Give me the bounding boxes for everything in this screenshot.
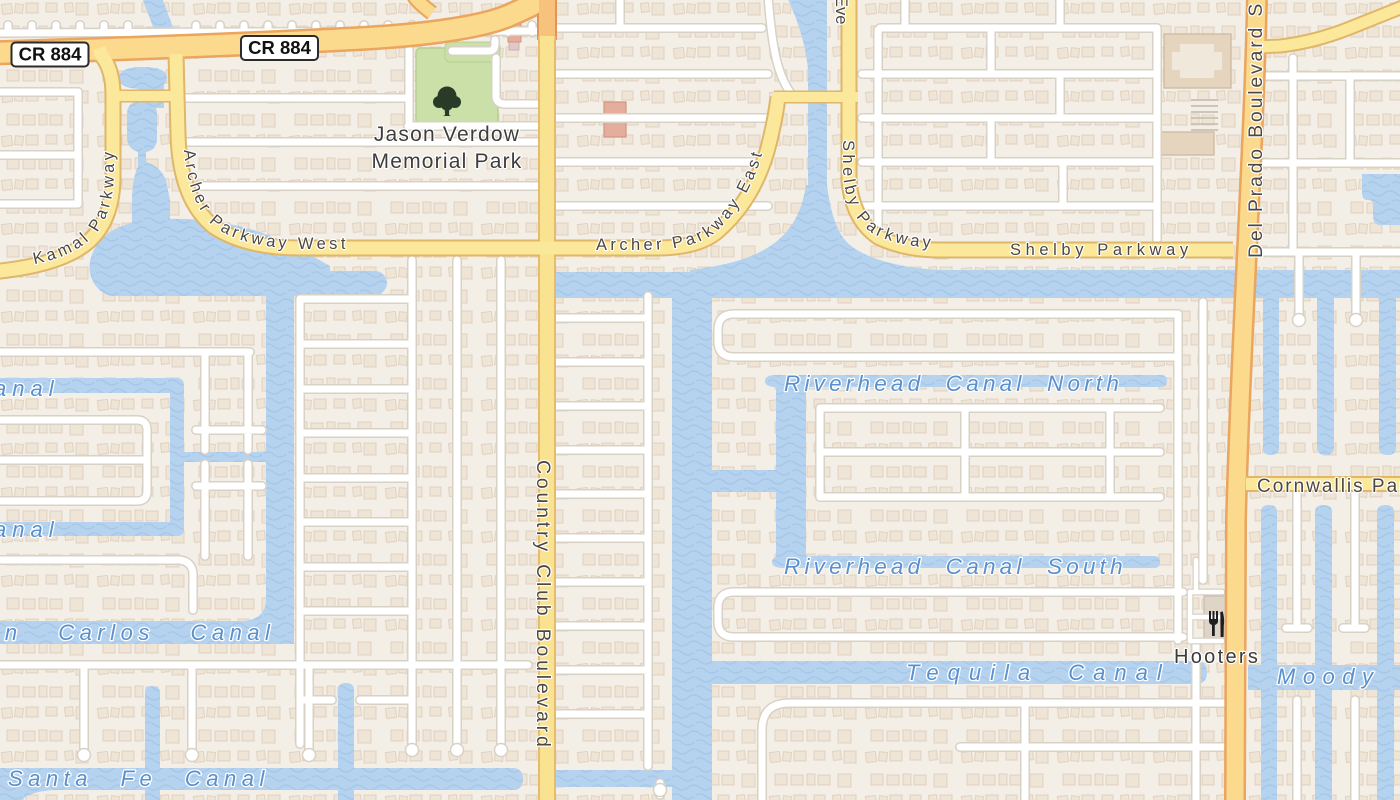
svg-text:Country Club Boulevard: Country Club Boulevard [532, 460, 554, 751]
svg-text:Hooters: Hooters [1174, 646, 1260, 668]
svg-text:CR 884: CR 884 [19, 44, 82, 65]
svg-text:Del Prado Boulevard S: Del Prado Boulevard S [1245, 1, 1267, 258]
svg-text:Tequila Canal: Tequila Canal [906, 660, 1171, 685]
svg-text:Cornwallis Parkw: Cornwallis Parkw [1257, 476, 1400, 497]
svg-text:Santa Fe Canal: Santa Fe Canal [8, 766, 270, 791]
svg-text:Moody Can: Moody Can [1277, 664, 1400, 689]
svg-text:Shelby Parkway: Shelby Parkway [1010, 241, 1193, 259]
svg-text:Riverhead Canal North: Riverhead Canal North [784, 371, 1123, 396]
svg-text:Jason Verdow: Jason Verdow [374, 123, 520, 146]
svg-text:Riverhead Canal South: Riverhead Canal South [784, 554, 1127, 579]
svg-text:CR 884: CR 884 [248, 37, 311, 58]
svg-text:San Carlos Canal: San Carlos Canal [0, 620, 275, 645]
svg-text:Eve: Eve [832, 0, 850, 24]
svg-text:anal: anal [0, 376, 60, 401]
svg-text:Memorial Park: Memorial Park [372, 150, 523, 173]
svg-text:anal: anal [0, 517, 60, 542]
